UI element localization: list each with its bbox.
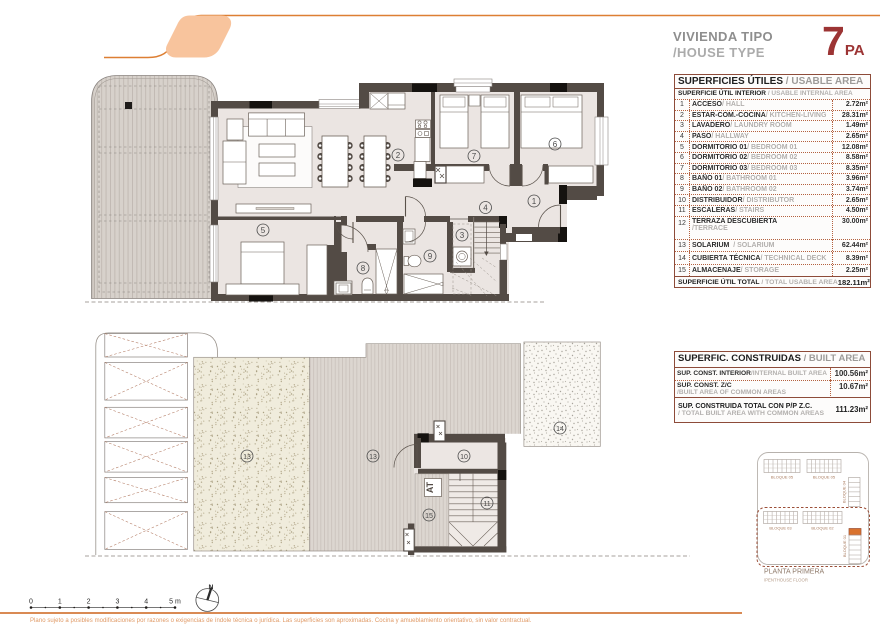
svg-text:15: 15 [425,513,433,520]
svg-text:5 m: 5 m [169,599,181,606]
svg-text:1: 1 [532,197,537,206]
svg-text:4: 4 [144,599,148,606]
svg-text:10: 10 [460,454,468,461]
svg-text:13: 13 [369,454,377,461]
svg-text:3: 3 [115,599,119,606]
svg-text:2: 2 [396,151,401,160]
svg-text:11: 11 [483,501,490,508]
svg-text:4: 4 [483,203,488,212]
svg-text:7: 7 [472,152,477,161]
svg-text:14: 14 [556,426,564,433]
svg-text:2: 2 [87,599,91,606]
svg-text:8: 8 [361,264,366,273]
svg-text:0: 0 [29,599,33,606]
svg-text:6: 6 [553,140,558,149]
svg-text:BLOQUE 05: BLOQUE 05 [771,475,794,480]
svg-text:BLOQUE 02: BLOQUE 02 [811,526,834,531]
svg-text:PLANTA PRIMERA: PLANTA PRIMERA [764,569,824,576]
svg-text:9: 9 [428,252,433,261]
svg-text:AT: AT [425,481,435,493]
svg-text:1: 1 [58,599,62,606]
svg-text:BLOQUE 04: BLOQUE 04 [842,480,847,503]
svg-text:5: 5 [261,226,266,235]
svg-text:3: 3 [460,231,465,240]
svg-text:BLOQUE 03: BLOQUE 03 [769,526,792,531]
svg-text:/PENTHOUSE FLOOR: /PENTHOUSE FLOOR [764,578,808,583]
svg-text:BLOQUE 05: BLOQUE 05 [813,475,836,480]
svg-text:13: 13 [243,454,251,461]
svg-text:BLOQUE 01: BLOQUE 01 [842,534,847,557]
